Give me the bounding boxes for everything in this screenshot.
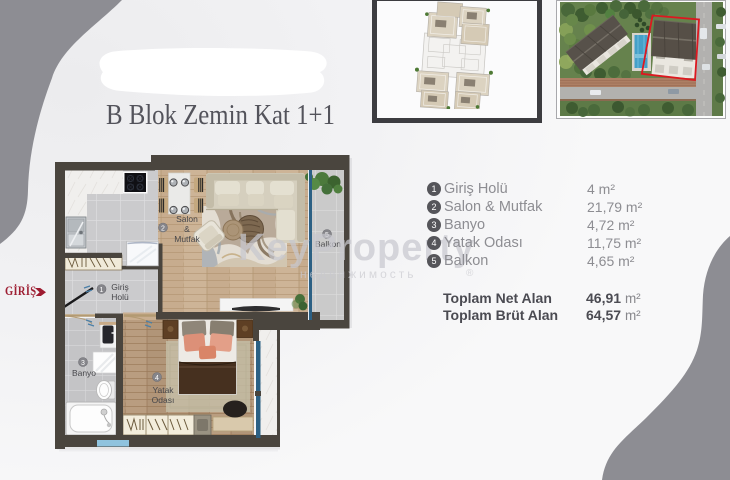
svg-text:Odası: Odası [152,395,175,405]
svg-text:4: 4 [155,375,159,382]
svg-text:Holü: Holü [111,292,129,302]
svg-text:1: 1 [100,287,104,294]
svg-text:Mutfak: Mutfak [174,234,200,244]
svg-text:Yatak: Yatak [152,385,174,395]
svg-text:Salon: Salon [176,214,198,224]
svg-text:Giriş: Giriş [111,282,128,292]
svg-text:3: 3 [81,360,85,367]
svg-text:&: & [184,224,190,234]
svg-text:Banyo: Banyo [72,368,96,378]
svg-text:2: 2 [161,225,165,232]
